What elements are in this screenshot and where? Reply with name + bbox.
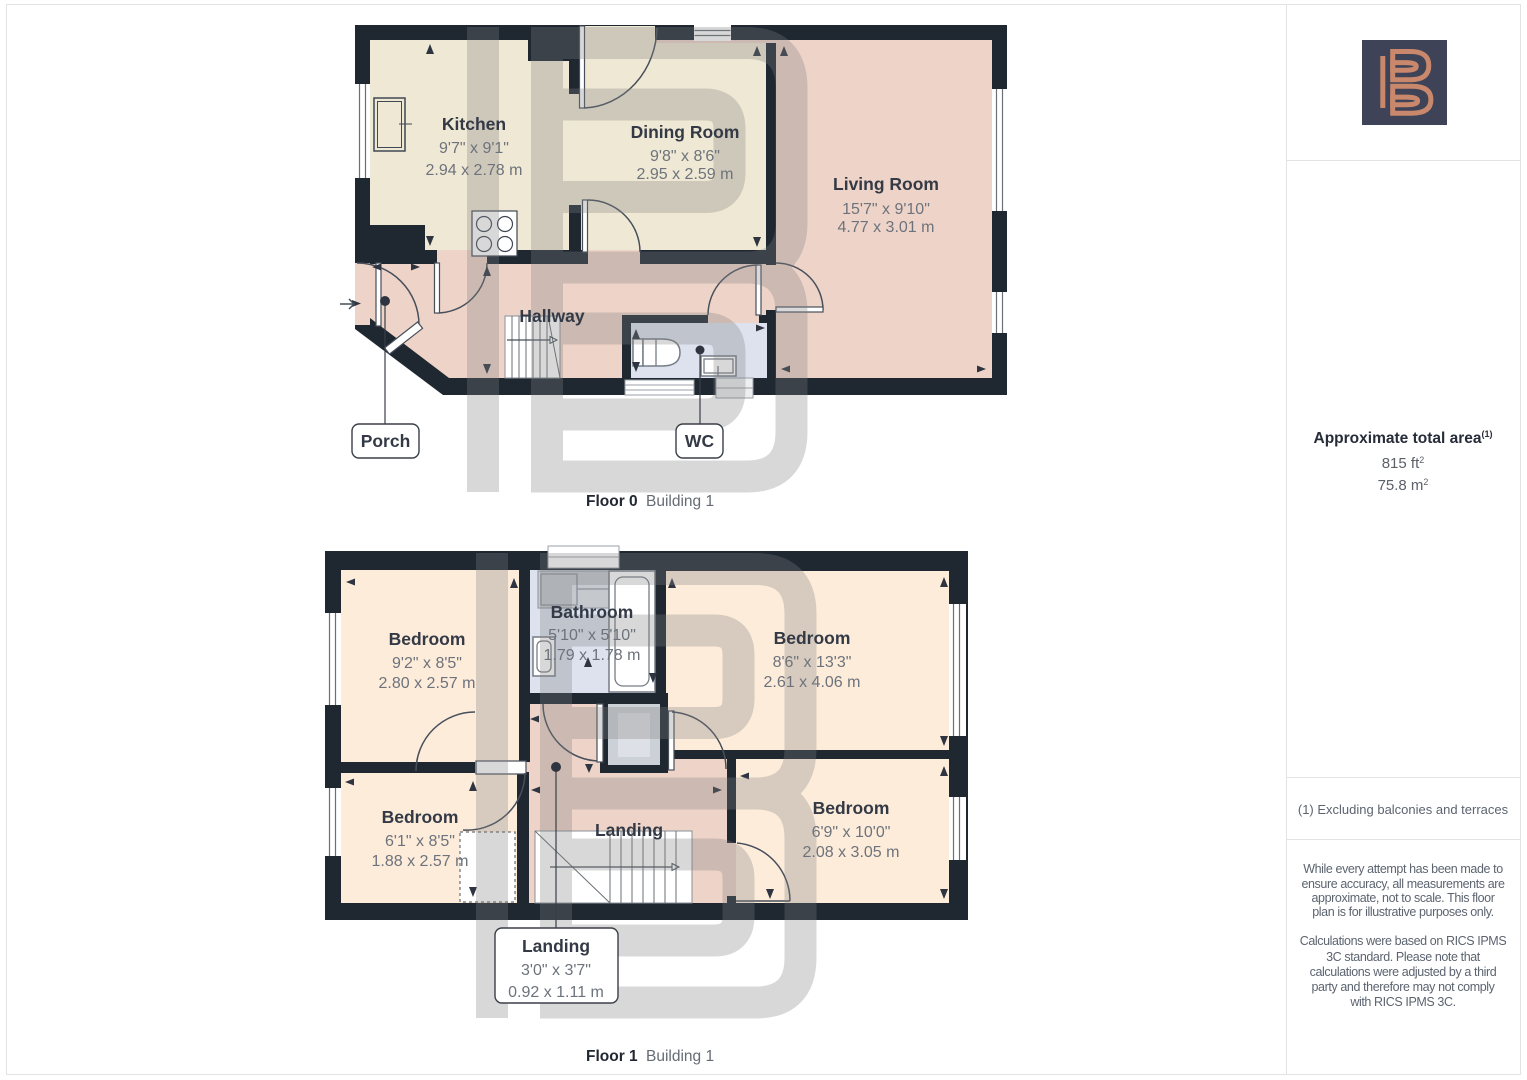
svg-text:Porch: Porch bbox=[361, 431, 411, 451]
svg-text:3'0" x 3'7": 3'0" x 3'7" bbox=[521, 962, 591, 979]
svg-text:Dining Room: Dining Room bbox=[631, 122, 740, 142]
svg-text:party and therefore may not co: party and therefore may not comply bbox=[1311, 980, 1495, 994]
svg-text:Bedroom: Bedroom bbox=[389, 629, 466, 649]
svg-text:calculations were adjusted by: calculations were adjusted by a third bbox=[1310, 965, 1497, 979]
svg-text:2.80 x 2.57 m: 2.80 x 2.57 m bbox=[379, 675, 476, 692]
svg-text:9'7" x 9'1": 9'7" x 9'1" bbox=[439, 140, 509, 157]
svg-text:6'1" x 8'5": 6'1" x 8'5" bbox=[385, 833, 455, 850]
svg-text:Bathroom: Bathroom bbox=[551, 602, 634, 622]
svg-text:Living Room: Living Room bbox=[833, 174, 939, 194]
svg-text:(1) Excluding balconies and te: (1) Excluding balconies and terraces bbox=[1298, 802, 1509, 817]
svg-text:Bedroom: Bedroom bbox=[813, 798, 890, 818]
svg-text:approximate, not to scale. Thi: approximate, not to scale. This floor bbox=[1312, 891, 1495, 905]
svg-text:Kitchen: Kitchen bbox=[442, 114, 506, 134]
svg-text:15'7" x 9'10": 15'7" x 9'10" bbox=[842, 201, 930, 218]
svg-text:1.88 x 2.57 m: 1.88 x 2.57 m bbox=[372, 853, 469, 870]
svg-text:815 ft2: 815 ft2 bbox=[1382, 455, 1425, 472]
svg-text:2.95 x 2.59 m: 2.95 x 2.59 m bbox=[637, 166, 734, 183]
svg-text:5'10" x 5'10": 5'10" x 5'10" bbox=[548, 627, 636, 644]
svg-text:Bedroom: Bedroom bbox=[382, 807, 459, 827]
svg-text:Building 1: Building 1 bbox=[646, 493, 714, 510]
svg-text:with RICS IPMS 3C.: with RICS IPMS 3C. bbox=[1349, 995, 1455, 1009]
svg-text:Landing: Landing bbox=[522, 936, 590, 956]
svg-text:WC: WC bbox=[685, 431, 715, 451]
svg-text:2.61 x 4.06 m: 2.61 x 4.06 m bbox=[764, 674, 861, 691]
svg-text:6'9" x 10'0": 6'9" x 10'0" bbox=[812, 824, 891, 841]
svg-text:Building 1: Building 1 bbox=[646, 1048, 714, 1065]
svg-text:While every attempt has been m: While every attempt has been made to bbox=[1303, 862, 1503, 876]
svg-text:3C standard. Please note that: 3C standard. Please note that bbox=[1326, 950, 1481, 964]
svg-text:4.77 x 3.01 m: 4.77 x 3.01 m bbox=[838, 219, 935, 236]
svg-text:Floor 1: Floor 1 bbox=[586, 1048, 638, 1065]
svg-text:2.08 x 3.05 m: 2.08 x 3.05 m bbox=[803, 844, 900, 861]
svg-text:1.79 x 1.78 m: 1.79 x 1.78 m bbox=[544, 647, 641, 664]
svg-text:Floor 0: Floor 0 bbox=[586, 493, 638, 510]
svg-text:Hallway: Hallway bbox=[519, 306, 584, 326]
svg-text:Landing: Landing bbox=[595, 820, 663, 840]
svg-text:ensure accuracy, all measureme: ensure accuracy, all measurements are bbox=[1301, 877, 1505, 891]
svg-text:75.8 m2: 75.8 m2 bbox=[1378, 477, 1429, 494]
svg-text:2.94 x 2.78 m: 2.94 x 2.78 m bbox=[426, 162, 523, 179]
svg-text:0.92 x 1.11 m: 0.92 x 1.11 m bbox=[508, 984, 604, 1001]
svg-text:plan is for illustrative purpo: plan is for illustrative purposes only. bbox=[1312, 905, 1493, 919]
svg-text:Calculations were based on RIC: Calculations were based on RICS IPMS bbox=[1300, 934, 1507, 948]
svg-text:8'6" x 13'3": 8'6" x 13'3" bbox=[773, 654, 852, 671]
svg-text:9'2" x 8'5": 9'2" x 8'5" bbox=[392, 655, 462, 672]
svg-text:Bedroom: Bedroom bbox=[774, 628, 851, 648]
svg-text:9'8" x 8'6": 9'8" x 8'6" bbox=[650, 148, 720, 165]
svg-text:Approximate total area(1): Approximate total area(1) bbox=[1314, 429, 1493, 447]
